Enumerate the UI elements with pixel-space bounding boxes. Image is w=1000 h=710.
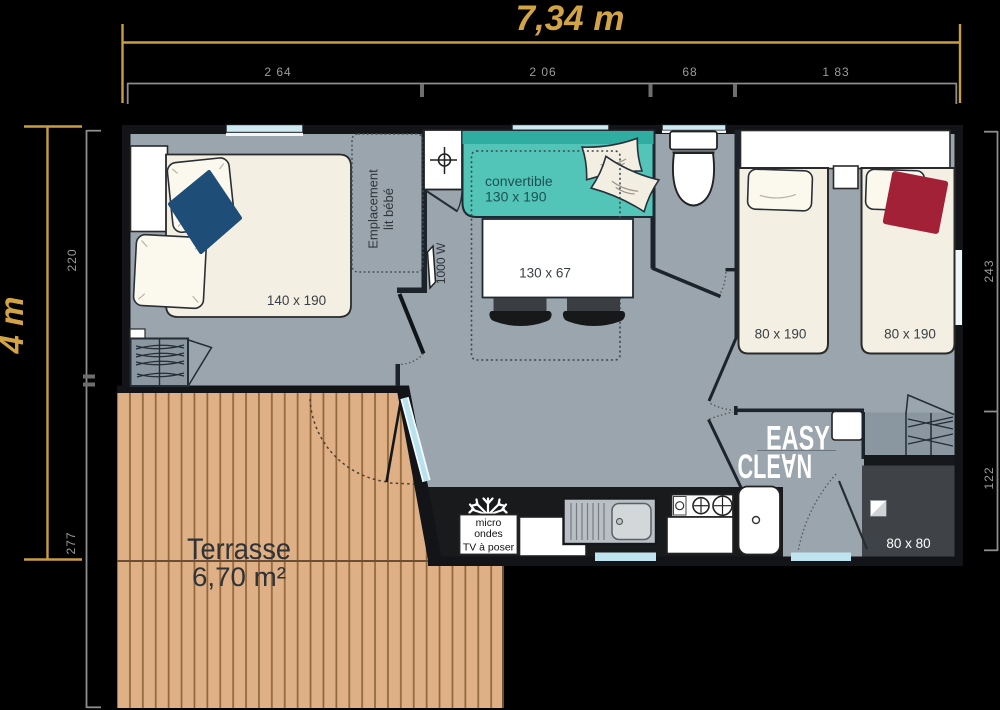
svg-text:130 x 67: 130 x 67: [519, 266, 571, 281]
svg-text:243: 243: [982, 259, 996, 282]
svg-text:CLE: CLE: [738, 448, 781, 486]
svg-text:7,34 m: 7,34 m: [516, 0, 625, 38]
svg-text:2 64: 2 64: [264, 65, 291, 79]
svg-text:6,70 m²: 6,70 m²: [192, 562, 286, 592]
svg-text:140 x 190: 140 x 190: [267, 293, 326, 308]
svg-text:122: 122: [982, 466, 996, 489]
svg-text:130 x 190: 130 x 190: [485, 189, 547, 205]
svg-text:80 x 190: 80 x 190: [755, 327, 807, 342]
svg-text:1 83: 1 83: [822, 65, 849, 79]
svg-text:68: 68: [682, 65, 697, 79]
svg-text:277: 277: [64, 531, 78, 554]
svg-text:ondes: ondes: [474, 528, 503, 540]
svg-text:TV à poser: TV à poser: [463, 542, 515, 554]
svg-text:convertible: convertible: [485, 173, 553, 189]
svg-text:1000 W: 1000 W: [434, 242, 448, 284]
svg-text:80 x 190: 80 x 190: [884, 327, 936, 342]
svg-text:A: A: [781, 446, 797, 484]
svg-text:80 x 80: 80 x 80: [886, 536, 930, 551]
svg-text:220: 220: [65, 248, 79, 271]
svg-text:N: N: [796, 448, 812, 486]
svg-text:4 m: 4 m: [0, 297, 30, 355]
svg-text:2 06: 2 06: [529, 65, 556, 79]
